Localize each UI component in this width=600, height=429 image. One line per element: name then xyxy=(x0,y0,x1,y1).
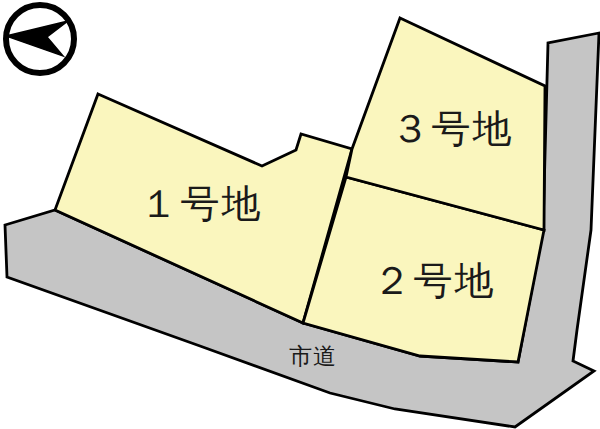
lot-layout-canvas: １号地 ２号地 ３号地 市道 xyxy=(0,0,600,429)
lot-layout-map: １号地 ２号地 ３号地 市道 xyxy=(0,0,600,429)
plot-2-label: ２号地 xyxy=(373,259,496,302)
north-arrow-icon xyxy=(6,5,74,73)
road-label: 市道 xyxy=(289,343,337,369)
plot-1-label: １号地 xyxy=(140,182,263,225)
plot-3-label: ３号地 xyxy=(391,107,514,150)
